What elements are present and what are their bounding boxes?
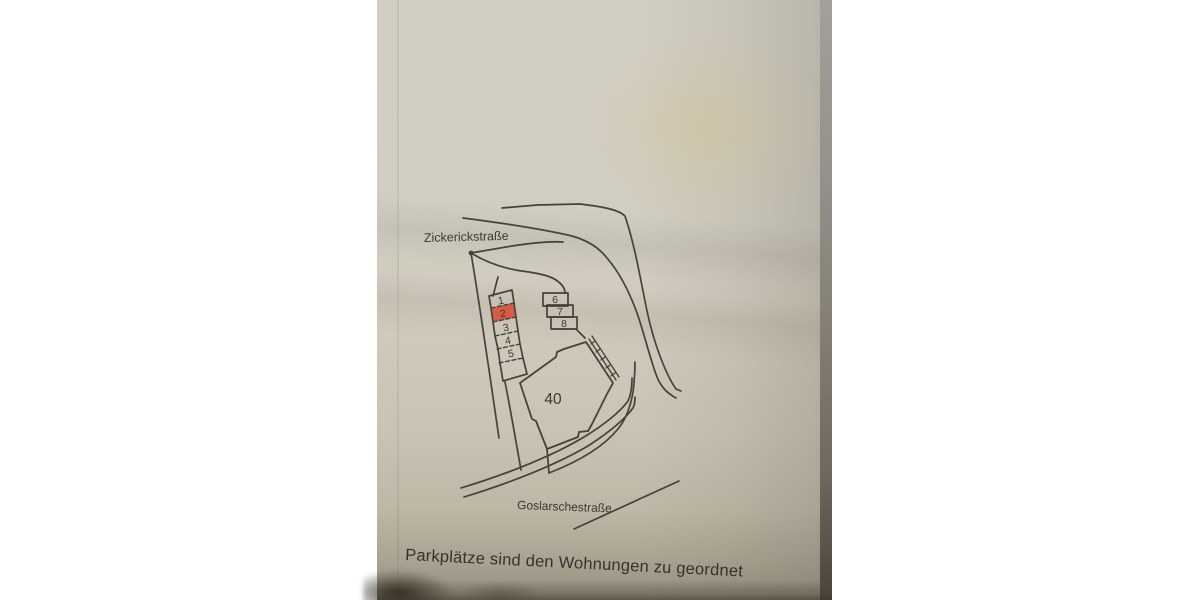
photo-bottom-left-dark-blob — [363, 570, 453, 600]
parcel-boundary-lines — [469, 242, 635, 473]
parcel-left-line — [471, 253, 499, 438]
box-8-tail-line — [577, 330, 585, 338]
parking-space-3-label: 3 — [502, 322, 510, 335]
white-margin-left — [0, 0, 377, 600]
caption: Parkplätze sind den Wohnungen zu geordne… — [405, 546, 744, 581]
building-label: 40 — [544, 391, 562, 408]
parking-space-4-label: 4 — [504, 335, 512, 348]
parking-space-5-label: 5 — [507, 348, 515, 361]
parking-space-8-label: 8 — [561, 318, 567, 330]
building-steps-band — [589, 336, 619, 380]
photo-bottom-mid-dark-blob — [465, 582, 539, 600]
building-below-line — [547, 449, 549, 473]
white-margin-right — [832, 0, 1200, 600]
parking-row-1-5: 1 2 3 4 5 — [489, 290, 527, 381]
screenshot: 1 2 3 4 5 6 7 — [0, 0, 1200, 600]
parcel-top-line — [471, 253, 565, 293]
parking-space-7-label: 7 — [557, 306, 563, 318]
lane-line — [505, 382, 521, 470]
paper-photo: 1 2 3 4 5 6 7 — [377, 0, 832, 600]
parking-space-6-label: 6 — [552, 294, 558, 306]
parcel-corner-to-street-line — [471, 242, 563, 253]
site-plan: 1 2 3 4 5 6 7 — [377, 0, 832, 600]
building-40: 40 — [520, 336, 619, 473]
street-top-outer-line — [502, 204, 681, 391]
parcel-bottom-curve — [549, 362, 635, 473]
parking-space-1-label: 1 — [497, 295, 505, 308]
parking-row-6-8: 6 7 8 — [543, 293, 585, 338]
parking-numbers-right: 6 7 8 — [552, 294, 567, 330]
photo-right-edge — [820, 0, 832, 600]
street-label-top: Zickerickstraße — [424, 229, 509, 245]
street-label-bottom: Goslarschestraße — [517, 498, 612, 515]
street-bottom-lower-line — [464, 397, 635, 497]
building-40-outline — [520, 342, 613, 449]
